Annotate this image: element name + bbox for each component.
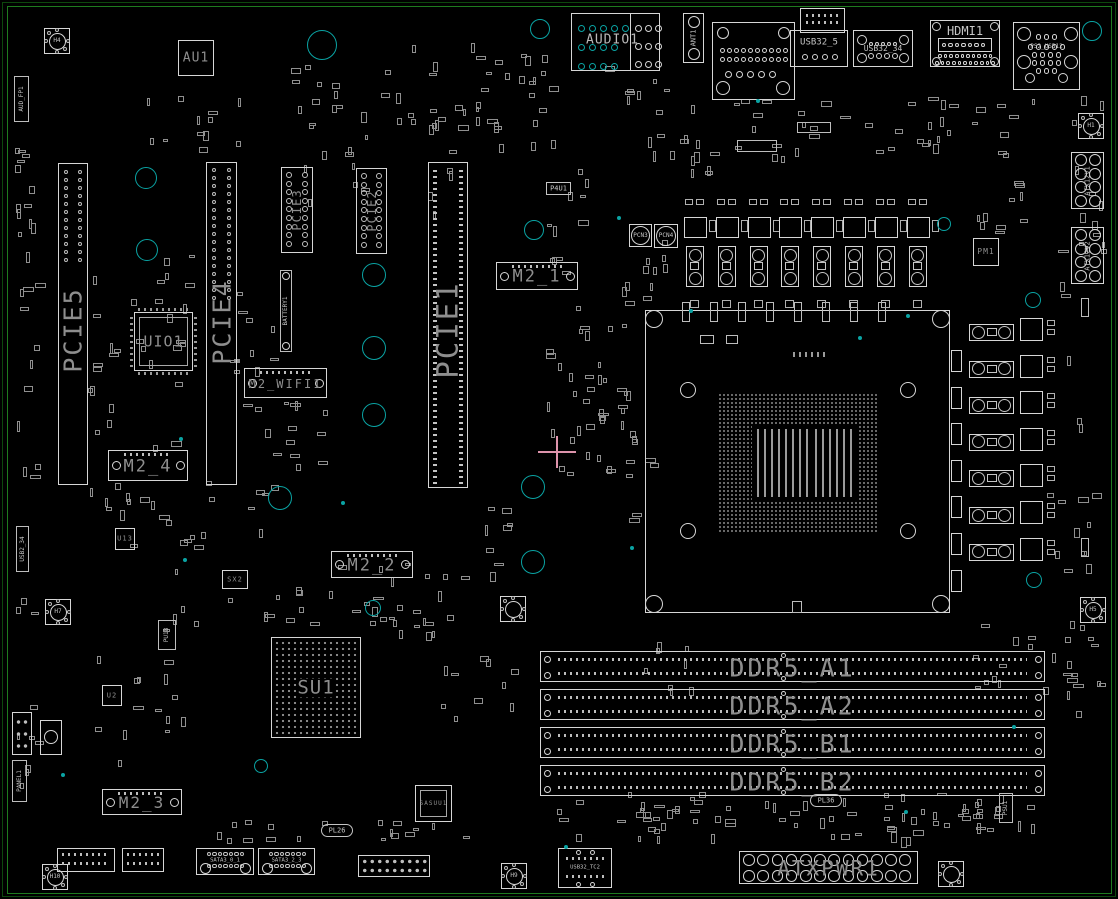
pin-header[interactable]: [951, 533, 962, 555]
choke-pad: [720, 272, 733, 285]
end-hole: [282, 342, 290, 350]
passive-component: [266, 837, 276, 842]
vrm-cap: [823, 199, 831, 205]
vrm-cap: [919, 199, 927, 205]
passive-component: [821, 101, 831, 107]
passive-component: [559, 818, 569, 822]
passive-component: [546, 353, 556, 359]
passive-component: [627, 89, 633, 93]
vrm-power-stage[interactable]: [1020, 391, 1043, 414]
choke-pad: [972, 472, 985, 485]
pin-hole: [822, 54, 828, 60]
passive-component: [643, 266, 649, 274]
passive-component: [691, 169, 694, 178]
passive-component: [90, 386, 95, 395]
hdmi1-label: HDMI1: [947, 25, 983, 37]
pad-strip: [194, 316, 197, 367]
usb32-tc2-label: USB32_TC2: [570, 865, 600, 871]
passive-component: [273, 453, 282, 456]
via-dot: [341, 501, 345, 505]
passive-component: [237, 292, 243, 297]
passive-component: [662, 255, 667, 262]
passive-component: [597, 455, 601, 462]
pin-header[interactable]: [951, 387, 962, 409]
pin-hole: [892, 53, 898, 59]
passive-component: [599, 409, 604, 417]
passive-component: [641, 802, 645, 812]
passive-component: [411, 119, 417, 125]
passive-component: [585, 179, 589, 188]
atx-pin: [899, 870, 911, 882]
passive-component: [1072, 120, 1077, 126]
passive-component: [155, 299, 163, 305]
passive-component: [238, 311, 248, 314]
passive-component: [576, 834, 582, 842]
passive-component: [317, 432, 326, 436]
header-pad: [361, 242, 367, 248]
pin-hole: [240, 863, 251, 874]
via-dot: [179, 437, 183, 441]
pin-header[interactable]: [951, 570, 962, 592]
passive-component: [694, 152, 700, 163]
vrm-power-stage[interactable]: [716, 217, 739, 238]
passive-component: [208, 111, 218, 115]
via-dot: [1012, 725, 1016, 729]
via-dot: [564, 845, 568, 849]
choke-pad: [998, 545, 1011, 558]
passive-component: [983, 213, 988, 222]
passive-component: [794, 823, 798, 828]
passive-component: [865, 123, 873, 127]
passive-component: [1063, 673, 1073, 676]
passive-component: [24, 204, 32, 208]
via-hole: [254, 759, 268, 773]
passive-component: [243, 404, 253, 407]
passive-component: [646, 258, 650, 265]
choke-core: [987, 474, 997, 482]
atx-pin: [1089, 195, 1101, 207]
header-pad: [376, 182, 382, 188]
passive-component: [438, 591, 442, 602]
header-pad: [286, 172, 292, 178]
pin-header[interactable]: [951, 350, 962, 372]
pin-hole: [977, 54, 981, 58]
passive-component: [494, 563, 504, 567]
passive-component: [329, 591, 334, 600]
passive-component: [577, 426, 580, 436]
passive-component: [1047, 493, 1054, 498]
vrm-cap: [812, 199, 820, 205]
choke-core: [722, 262, 731, 270]
vrm-cap: [1047, 512, 1055, 518]
passive-component: [772, 154, 777, 162]
jumper-pads: [1081, 298, 1089, 317]
passive-component: [539, 108, 547, 113]
choke-pad: [720, 249, 733, 262]
pin-hole: [223, 864, 227, 868]
vrm-power-stage[interactable]: [1020, 355, 1043, 378]
pad-strip: [806, 14, 839, 17]
passive-component: [608, 326, 613, 332]
pin-hole: [1056, 52, 1062, 58]
passive-component: [390, 829, 393, 837]
passive-component: [980, 222, 984, 230]
pm1-chip-label: PM1: [977, 248, 994, 256]
passive-component: [1100, 101, 1103, 111]
pin-hole: [1040, 60, 1046, 66]
passive-component: [95, 727, 102, 732]
passive-component: [137, 677, 142, 683]
jumper-pads: [700, 335, 714, 344]
vrm-cap: [908, 199, 916, 205]
vrm-cap: [1047, 357, 1055, 363]
pin-hole: [948, 43, 952, 47]
passive-component: [423, 618, 426, 626]
vrm-power-stage[interactable]: [1020, 538, 1043, 561]
pin-hole: [955, 54, 959, 58]
passive-component: [317, 82, 322, 88]
passive-component: [393, 620, 397, 627]
pin-hole: [635, 61, 642, 68]
pin-hole: [884, 53, 890, 59]
passive-component: [471, 43, 475, 53]
passive-component: [711, 834, 716, 844]
header-pad: [286, 181, 292, 187]
vrm-cap: [690, 300, 699, 308]
passive-component: [622, 324, 627, 328]
vrm-cap: [1047, 503, 1055, 509]
pin-hole: [812, 54, 818, 60]
passive-component: [481, 88, 488, 92]
pin-hole: [200, 863, 211, 874]
choke-pad: [972, 326, 985, 339]
vrm-cap: [876, 199, 884, 205]
screw-hole: [170, 798, 179, 807]
pin-hole: [961, 54, 965, 58]
vrm-power-stage[interactable]: [684, 217, 707, 238]
passive-component: [1058, 500, 1065, 504]
passive-component: [181, 606, 185, 613]
choke-pad: [911, 272, 924, 285]
passive-component: [586, 452, 590, 460]
passive-component: [928, 122, 933, 130]
slot-end-hole: [544, 672, 551, 679]
vrm-power-stage[interactable]: [843, 217, 866, 238]
passive-component: [901, 837, 907, 848]
passive-component: [556, 257, 562, 261]
passive-component: [264, 612, 268, 622]
passive-component: [1065, 637, 1071, 643]
passive-component: [348, 147, 352, 155]
passive-component: [209, 497, 214, 502]
passive-component: [617, 820, 626, 823]
cpu-center-caps: [757, 429, 809, 497]
passive-component: [23, 287, 34, 292]
pin-header[interactable]: [951, 460, 962, 482]
pad-strip: [566, 857, 604, 860]
via-hole: [136, 239, 158, 261]
pl36-label: PL36: [818, 797, 835, 804]
passive-component: [425, 622, 434, 627]
pad-strip: [138, 372, 189, 375]
passive-component: [653, 817, 660, 821]
pcie5-slot-label: PCIE5: [61, 287, 86, 372]
pcie3-header-label: PCIE3: [291, 189, 303, 230]
atx-pin: [1075, 270, 1087, 282]
passive-component: [933, 812, 937, 820]
m2_wifi1-label: M2_WIFI1: [249, 378, 323, 390]
passive-component: [847, 812, 857, 817]
pin-hole: [1048, 60, 1054, 66]
usb32-5-connector[interactable]: [790, 30, 848, 67]
via-dot: [630, 546, 634, 550]
passive-component: [1064, 569, 1074, 572]
vrm-power-stage[interactable]: [779, 217, 802, 238]
passive-component: [621, 421, 625, 429]
pin-hole: [946, 61, 950, 65]
vrm-cap: [685, 199, 693, 205]
pin-hole: [958, 61, 962, 65]
via-hole: [135, 167, 157, 189]
passive-component: [773, 803, 777, 813]
passive-component: [585, 331, 590, 342]
choke-pad: [972, 509, 985, 522]
passive-component: [432, 823, 435, 830]
choke-core: [987, 511, 997, 519]
usb-header[interactable]: [57, 848, 115, 872]
passive-component: [1088, 637, 1093, 642]
audio-jack-pin: [622, 25, 629, 32]
passive-component: [1080, 213, 1085, 223]
pin-hole: [1017, 55, 1031, 69]
via-dot: [183, 558, 187, 562]
passive-component: [1087, 522, 1091, 528]
passive-component: [578, 169, 583, 175]
passive-component: [31, 223, 36, 234]
sata3_2_3-label: SATA3_2_3: [272, 858, 302, 864]
passive-component: [981, 624, 990, 628]
passive-component: [250, 350, 254, 356]
passive-component: [585, 375, 594, 379]
choke-core: [817, 262, 826, 270]
passive-component: [208, 117, 214, 123]
choke-core: [987, 438, 997, 446]
mounting-hole-label: H5: [1089, 607, 1096, 613]
vrm-cap: [791, 199, 799, 205]
pin-hole: [1044, 34, 1050, 40]
passive-component: [779, 818, 786, 822]
passive-component: [286, 618, 295, 623]
passive-component: [23, 467, 27, 478]
passive-component: [178, 96, 184, 102]
pin-hole: [949, 54, 953, 58]
passive-component: [184, 539, 193, 543]
pin-hole: [1044, 68, 1050, 74]
passive-component: [1009, 198, 1014, 202]
vrm-power-stage[interactable]: [1020, 501, 1043, 524]
via-hole: [937, 217, 951, 231]
passive-component: [587, 387, 594, 392]
m2_1-label: M2_1: [513, 269, 562, 286]
vrm-power-stage[interactable]: [748, 217, 771, 238]
passive-component: [626, 474, 633, 478]
passive-component: [680, 139, 689, 144]
passive-component: [1091, 644, 1100, 647]
passive-component: [654, 805, 665, 808]
choke-core: [785, 262, 794, 270]
cpu-center-caps: [815, 429, 853, 497]
via-hole: [521, 475, 545, 499]
passive-component: [618, 405, 628, 410]
pin-header[interactable]: [951, 423, 962, 445]
vrm-power-stage[interactable]: [875, 217, 898, 238]
pad-strip: [138, 308, 189, 311]
passive-component: [365, 135, 369, 141]
via-hole: [521, 550, 545, 574]
passive-component: [24, 386, 32, 392]
passive-component: [16, 204, 21, 212]
vrm-power-stage[interactable]: [811, 217, 834, 238]
passive-component: [626, 460, 634, 464]
audio-jack-pin: [578, 63, 585, 70]
pin-hole: [590, 850, 595, 855]
passive-component: [972, 122, 978, 125]
passive-component: [131, 299, 137, 306]
via-dot: [756, 99, 760, 103]
atx-pin: [1089, 154, 1101, 166]
vrm-power-stage[interactable]: [907, 217, 930, 238]
choke-pad: [816, 249, 829, 262]
passive-component: [947, 130, 951, 136]
vrm-cap: [1047, 329, 1055, 335]
passive-component: [643, 812, 651, 818]
passive-component: [352, 163, 355, 170]
passive-component: [549, 86, 558, 92]
passive-component: [380, 617, 386, 622]
passive-component: [140, 497, 150, 503]
sata3_0_1-label: SATA3_0_1: [210, 858, 240, 864]
passive-component: [312, 99, 320, 104]
vrm-cap: [881, 300, 890, 308]
psu1-label: PSU1: [1003, 801, 1009, 815]
via-hole: [524, 220, 544, 240]
pin-hole: [727, 48, 732, 53]
pin-hole: [1040, 52, 1046, 58]
vrm-cap: [855, 199, 863, 205]
vrm-power-stage[interactable]: [1020, 318, 1043, 341]
passive-component: [502, 682, 505, 689]
vrm-cap: [1047, 540, 1055, 546]
passive-component: [809, 134, 820, 139]
passive-component: [268, 824, 273, 830]
via-dot: [61, 773, 65, 777]
passive-component: [576, 800, 583, 805]
pin-hole: [212, 864, 216, 868]
passive-component: [996, 225, 1007, 229]
pin-hole: [966, 54, 970, 58]
jumper-pads: [794, 302, 802, 322]
choke-pad: [972, 545, 985, 558]
passive-component: [165, 273, 169, 281]
pin-hole: [655, 43, 662, 50]
passive-component: [580, 326, 590, 330]
choke-core: [987, 548, 997, 556]
passive-component: [17, 421, 20, 432]
pad-strip: [793, 352, 825, 357]
via-hole: [365, 600, 381, 616]
passive-component: [323, 410, 328, 416]
passive-component: [895, 129, 903, 134]
passive-component: [175, 569, 178, 575]
passive-component: [885, 805, 892, 810]
passive-component: [1074, 528, 1080, 538]
vrm-cap: [817, 300, 826, 308]
passive-component: [795, 148, 799, 157]
com-header[interactable]: [122, 848, 164, 872]
passive-component: [908, 102, 916, 106]
passive-component: [888, 147, 895, 151]
via-hole: [362, 263, 386, 287]
ps2-usb12-label: PS2_USB12: [1030, 44, 1063, 50]
vrm-power-stage[interactable]: [1020, 428, 1043, 451]
passive-component: [1076, 711, 1081, 718]
vrm-cap: [754, 300, 763, 308]
jumper-pads: [726, 335, 738, 344]
pin-header[interactable]: [951, 496, 962, 518]
screw-hole: [401, 560, 410, 569]
atx-pin: [1089, 229, 1101, 241]
sx2-chip-label: SX2: [227, 576, 243, 583]
passive-component: [997, 104, 1006, 108]
vrm-power-stage[interactable]: [1020, 464, 1043, 487]
via-hole: [1082, 21, 1102, 41]
passive-component: [696, 140, 700, 149]
passive-component: [576, 306, 581, 311]
passive-component: [194, 621, 199, 628]
choke-pad: [689, 249, 702, 262]
passive-component: [1055, 551, 1060, 559]
slot-end-hole: [1035, 786, 1042, 793]
passive-component: [255, 407, 262, 412]
pin-hole: [576, 882, 581, 887]
audio-jack-pin: [611, 25, 618, 32]
passive-component: [157, 280, 166, 284]
pin-hole: [857, 53, 867, 63]
passive-component: [463, 109, 466, 116]
passive-component: [93, 367, 102, 372]
passive-component: [638, 836, 641, 842]
p4u1-label: P4U1: [550, 185, 567, 192]
choke-pad: [998, 435, 1011, 448]
vrm-cap: [913, 300, 922, 308]
passive-component: [495, 60, 503, 66]
passive-component: [413, 828, 419, 832]
pcie4-slot-label: PCIE4: [209, 279, 234, 364]
ddr5_b2-label: DDR5_B2: [729, 769, 855, 794]
passive-component: [657, 836, 661, 843]
passive-component: [653, 151, 657, 162]
passive-component: [829, 816, 834, 822]
passive-component: [976, 107, 985, 112]
pin-hole: [1032, 60, 1038, 66]
passive-component: [171, 441, 182, 447]
atx-pin: [757, 870, 769, 882]
choke-pad: [784, 249, 797, 262]
passive-component: [670, 151, 675, 160]
vrm-cap: [722, 300, 731, 308]
passive-component: [820, 818, 824, 828]
passive-component: [197, 132, 206, 136]
